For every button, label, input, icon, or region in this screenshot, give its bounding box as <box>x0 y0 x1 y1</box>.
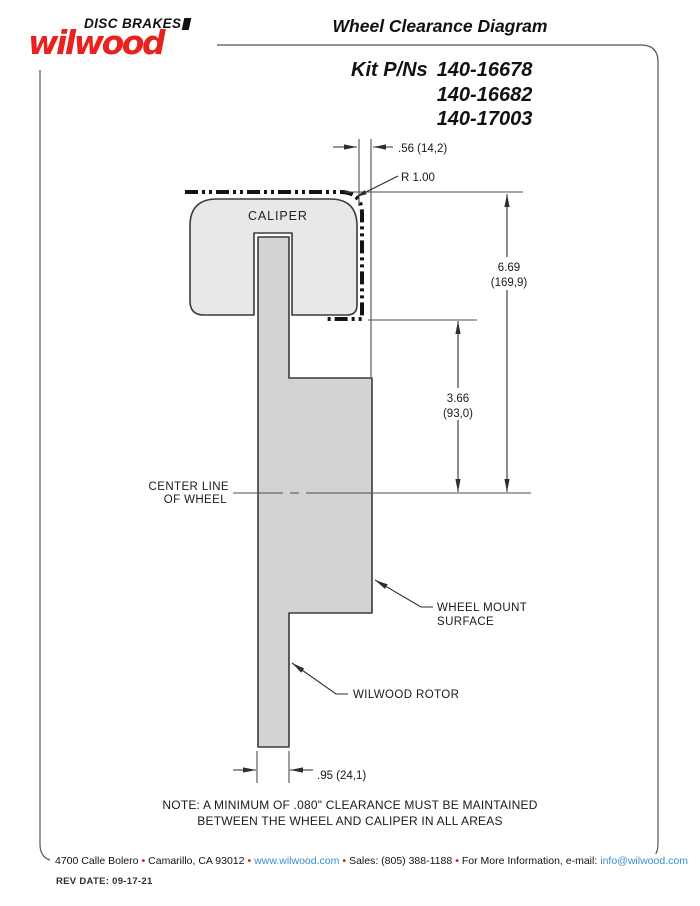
centerline-label-line2: OF WHEEL <box>164 494 227 506</box>
rotor-width-dim-label: .95 (24,1) <box>317 770 366 782</box>
rotor-leader-line <box>292 663 348 694</box>
wheel-clearance-diagram-page: DISC BRAKES wilwood Wheel Clearance Diag… <box>0 0 700 906</box>
clearance-diagram: CALIPER .56 (14,2) R 1.00 6.69 (169,9) 3… <box>0 0 700 906</box>
footer-address: 4700 Calle Bolero <box>55 855 138 867</box>
offset-dim-label: .56 (14,2) <box>398 143 447 155</box>
wheel-mount-leader-line <box>375 580 433 607</box>
footer-email-prefix: For More Information, e-mail: <box>462 855 597 867</box>
radius-leader-line <box>356 176 398 197</box>
height-dim-mm: (169,9) <box>491 277 528 289</box>
footer-bullet: • <box>141 855 145 867</box>
radius-dim-label: R 1.00 <box>401 172 435 184</box>
footer-contact-strip: 4700 Calle Bolero•Camarillo, CA 93012•ww… <box>50 854 693 869</box>
height-dim-inches: 6.69 <box>498 262 520 274</box>
mid-dim-mm: (93,0) <box>443 408 473 420</box>
centerline-label-line1: CENTER LINE <box>149 481 229 493</box>
rotor-label: WILWOOD ROTOR <box>353 689 459 701</box>
note-line2: BETWEEN THE WHEEL AND CALIPER IN ALL ARE… <box>60 814 640 830</box>
footer-bullet: • <box>342 855 346 867</box>
mid-dim-inches: 3.66 <box>447 393 469 405</box>
footer-city: Camarillo, CA 93012 <box>148 855 244 867</box>
footer-website-link[interactable]: www.wilwood.com <box>254 855 339 867</box>
footer-bullet: • <box>455 855 459 867</box>
clearance-note: NOTE: A MINIMUM OF .080" CLEARANCE MUST … <box>60 798 640 829</box>
footer-bullet: • <box>247 855 251 867</box>
rev-date: REV DATE: 09-17-21 <box>56 876 153 887</box>
footer-email-link[interactable]: info@wilwood.com <box>600 855 688 867</box>
wheel-mount-label-line2: SURFACE <box>437 616 494 628</box>
footer-sales-phone: Sales: (805) 388-1188 <box>349 855 452 867</box>
wheel-mount-label-line1: WHEEL MOUNT <box>437 602 527 614</box>
caliper-label: CALIPER <box>248 209 308 223</box>
note-line1: NOTE: A MINIMUM OF .080" CLEARANCE MUST … <box>60 798 640 814</box>
